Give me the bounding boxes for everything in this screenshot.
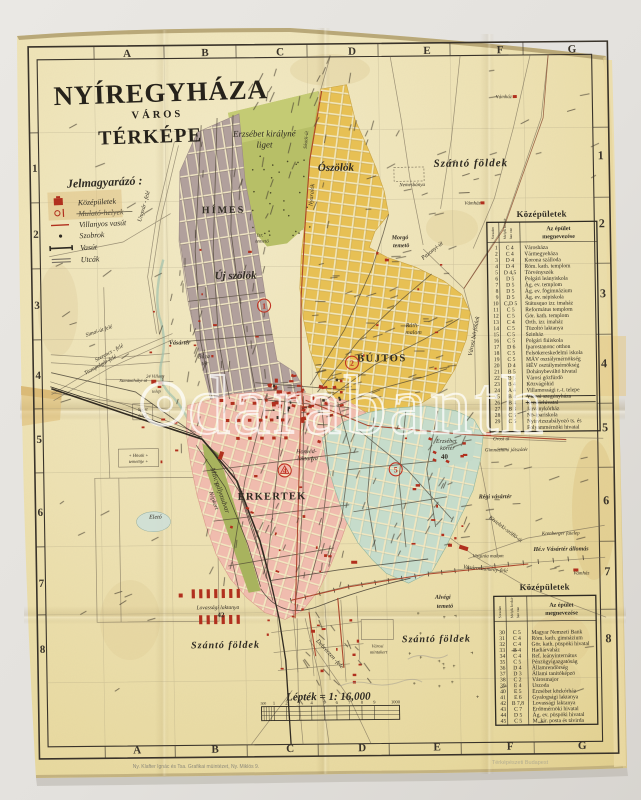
svg-text:8: 8	[40, 644, 46, 656]
svg-text:+ Hösök +: + Hösök +	[129, 453, 149, 458]
svg-text:Vásártér: Vásártér	[169, 340, 191, 346]
svg-text:Sorszám: Sorszám	[498, 606, 502, 619]
svg-text:7: 7	[39, 578, 45, 590]
svg-text:1: 1	[273, 701, 275, 706]
svg-text:1: 1	[598, 148, 604, 162]
svg-text:2: 2	[285, 700, 287, 705]
svg-text:C: C	[286, 743, 294, 755]
svg-text:2: 2	[599, 216, 605, 230]
svg-text:8: 8	[605, 631, 611, 645]
svg-text:Melyik kocká-: Melyik kocká-	[503, 217, 507, 239]
svg-text:6: 6	[603, 493, 609, 507]
svg-text:6: 6	[495, 276, 498, 282]
svg-text:G: G	[568, 43, 577, 55]
svg-text:D 4: D 4	[506, 258, 515, 264]
svg-text:A: A	[133, 744, 141, 756]
svg-text:Eletó: Eletó	[148, 515, 162, 521]
svg-text:Városi: Városi	[372, 643, 385, 648]
svg-text:Melyik kocká-: Melyik kocká-	[510, 596, 514, 618]
svg-text:1: 1	[495, 245, 498, 251]
svg-text:Sorszám: Sorszám	[491, 227, 495, 240]
svg-text:13: 13	[493, 320, 499, 326]
svg-text:D: D	[348, 46, 356, 58]
svg-text:Szentmihályi út: Szentmihályi út	[119, 378, 147, 383]
svg-text:Középületek: Középületek	[77, 197, 117, 208]
svg-text:D 4,5: D 4,5	[504, 270, 517, 276]
svg-text:C,D 5: C,D 5	[504, 301, 518, 307]
svg-text:D 4: D 4	[506, 264, 515, 270]
svg-text:D: D	[358, 742, 366, 754]
svg-text:40: 40	[441, 453, 449, 461]
svg-text:Térképészeti Budapest: Térképészeti Budapest	[492, 760, 549, 766]
svg-text:3: 3	[34, 300, 40, 312]
svg-text:Virginia malom: Virginia malom	[473, 554, 504, 559]
svg-text:16: 16	[494, 338, 500, 344]
svg-text:24 Villany: 24 Villany	[146, 374, 164, 379]
svg-text:F: F	[507, 741, 514, 753]
svg-text:1000: 1000	[391, 699, 401, 704]
svg-text:7: 7	[495, 283, 498, 289]
svg-text:Az épület: Az épület	[546, 226, 570, 232]
svg-text:500: 500	[261, 702, 267, 706]
svg-text:Vámház: Vámház	[464, 201, 480, 206]
svg-text:Ny. Klafter Ignác és Tsa. Graf: Ny. Klafter Ignác és Tsa. Grafikai müint…	[133, 764, 259, 770]
svg-text:Hé.v Vásártér állomás: Hé.v Vásártér állomás	[532, 546, 589, 553]
svg-text:Erzsébet királyné: Erzsébet királyné	[232, 128, 297, 139]
svg-text:Ráth-: Ráth-	[405, 323, 419, 329]
svg-text:laktanya: laktanya	[297, 456, 318, 462]
svg-text:E: E	[433, 741, 441, 753]
svg-text:Tüzoltó laktanya: Tüzoltó laktanya	[525, 325, 563, 331]
svg-text:18: 18	[494, 351, 500, 357]
svg-text:5: 5	[495, 270, 498, 276]
svg-text:A: A	[123, 48, 131, 60]
svg-text:Utcák: Utcák	[81, 254, 101, 264]
svg-text:C 5: C 5	[507, 326, 515, 332]
svg-text:VÁROS: VÁROS	[131, 108, 183, 122]
svg-text:17: 17	[494, 345, 500, 351]
svg-text:C 4: C 4	[507, 320, 515, 326]
svg-text:C 5: C 5	[507, 351, 515, 357]
svg-text:Régi vásártér: Régi vásártér	[478, 494, 513, 500]
svg-text:C 5: C 5	[507, 332, 515, 338]
svg-text:Morgó: Morgó	[391, 235, 409, 241]
svg-text:Szobrok: Szobrok	[79, 230, 105, 240]
svg-text:D 5: D 5	[506, 289, 515, 295]
svg-text:C: C	[276, 46, 284, 58]
svg-text:temetöje +: temetöje +	[129, 459, 148, 464]
svg-text:ban van: ban van	[509, 228, 513, 240]
svg-text:4: 4	[601, 356, 607, 370]
svg-text:darabanth: darabanth	[188, 359, 546, 452]
svg-text:Új szölök: Új szölök	[215, 270, 258, 282]
svg-text:D 6: D 6	[507, 344, 516, 350]
svg-text:Szántó földek: Szántó földek	[402, 634, 471, 646]
svg-text:ÉRKERTEK: ÉRKERTEK	[238, 490, 307, 503]
svg-text:2: 2	[495, 252, 498, 258]
svg-text:4: 4	[35, 370, 41, 382]
svg-text:Nemesbánya: Nemesbánya	[398, 183, 425, 188]
svg-text:temetö: temetö	[437, 604, 453, 610]
svg-text:2: 2	[33, 229, 39, 241]
svg-text:Középületek: Középületek	[516, 209, 566, 220]
svg-text:temetö: temetö	[393, 243, 409, 249]
svg-text:8: 8	[496, 289, 499, 295]
svg-text:12: 12	[493, 314, 499, 320]
svg-text:4: 4	[495, 264, 498, 270]
svg-text:5: 5	[394, 465, 398, 474]
svg-text:Vámház: Vámház	[573, 571, 589, 576]
svg-text:6: 6	[38, 507, 44, 519]
svg-text:D 5: D 5	[506, 276, 515, 282]
svg-text:5: 5	[602, 420, 608, 434]
svg-text:3: 3	[600, 286, 606, 300]
svg-text:Szántó földek: Szántó földek	[434, 157, 509, 170]
svg-text:E: E	[423, 45, 431, 57]
svg-text:14: 14	[493, 326, 499, 332]
svg-text:1: 1	[262, 302, 266, 311]
svg-text:9: 9	[496, 295, 499, 301]
svg-text:G: G	[578, 740, 587, 752]
svg-text:temetö: temetö	[255, 240, 269, 245]
svg-text:11: 11	[493, 307, 499, 313]
svg-text:Alvégi: Alvégi	[434, 595, 451, 601]
svg-text:15: 15	[493, 332, 499, 338]
svg-text:megnevezése: megnevezése	[542, 234, 575, 240]
svg-text:10: 10	[493, 301, 499, 307]
svg-text:Szántó földek: Szántó földek	[191, 640, 260, 652]
svg-text:Krenberger fatelep: Krenberger fatelep	[541, 531, 580, 536]
svg-text:M. kir. posta és távirda: M. kir. posta és távirda	[533, 718, 585, 725]
svg-text:D 5: D 5	[506, 295, 515, 301]
svg-text:C 4: C 4	[506, 251, 514, 257]
svg-text:telep: telep	[152, 389, 162, 394]
svg-text:B: B	[201, 47, 209, 59]
svg-text:mintakert: mintakert	[370, 649, 388, 654]
svg-text:5: 5	[36, 434, 42, 446]
svg-text:1: 1	[32, 163, 38, 175]
svg-text:B: B	[211, 744, 219, 756]
svg-text:C 5: C 5	[507, 307, 515, 313]
svg-text:45: 45	[501, 719, 507, 725]
svg-text:Vasút: Vasút	[80, 242, 98, 252]
svg-text:TÉRKÉPE: TÉRKÉPE	[98, 123, 203, 149]
svg-text:Az épület: Az épület	[549, 603, 573, 609]
svg-text:ban van: ban van	[516, 607, 520, 619]
svg-text:D 5: D 5	[506, 282, 515, 288]
svg-text:HÍMES: HÍMES	[202, 204, 246, 216]
svg-text:Ószölök: Ószölök	[318, 162, 355, 174]
svg-text:C 4: C 4	[506, 245, 514, 251]
svg-text:Középületek: Középületek	[519, 582, 569, 593]
svg-text:42: 42	[217, 611, 225, 619]
svg-text:Izr.: Izr.	[256, 234, 263, 239]
svg-text:F: F	[497, 44, 504, 56]
svg-text:C 5: C 5	[507, 338, 515, 344]
svg-text:C 5: C 5	[507, 313, 515, 319]
svg-text:3: 3	[495, 258, 498, 264]
svg-text:megnevezése: megnevezése	[545, 611, 578, 617]
svg-text:C 5: C 5	[514, 718, 522, 724]
svg-text:malom: malom	[405, 330, 422, 336]
svg-text:liget: liget	[256, 139, 273, 149]
svg-text:Vámház: Vámház	[496, 95, 512, 100]
svg-text:7: 7	[604, 564, 610, 578]
